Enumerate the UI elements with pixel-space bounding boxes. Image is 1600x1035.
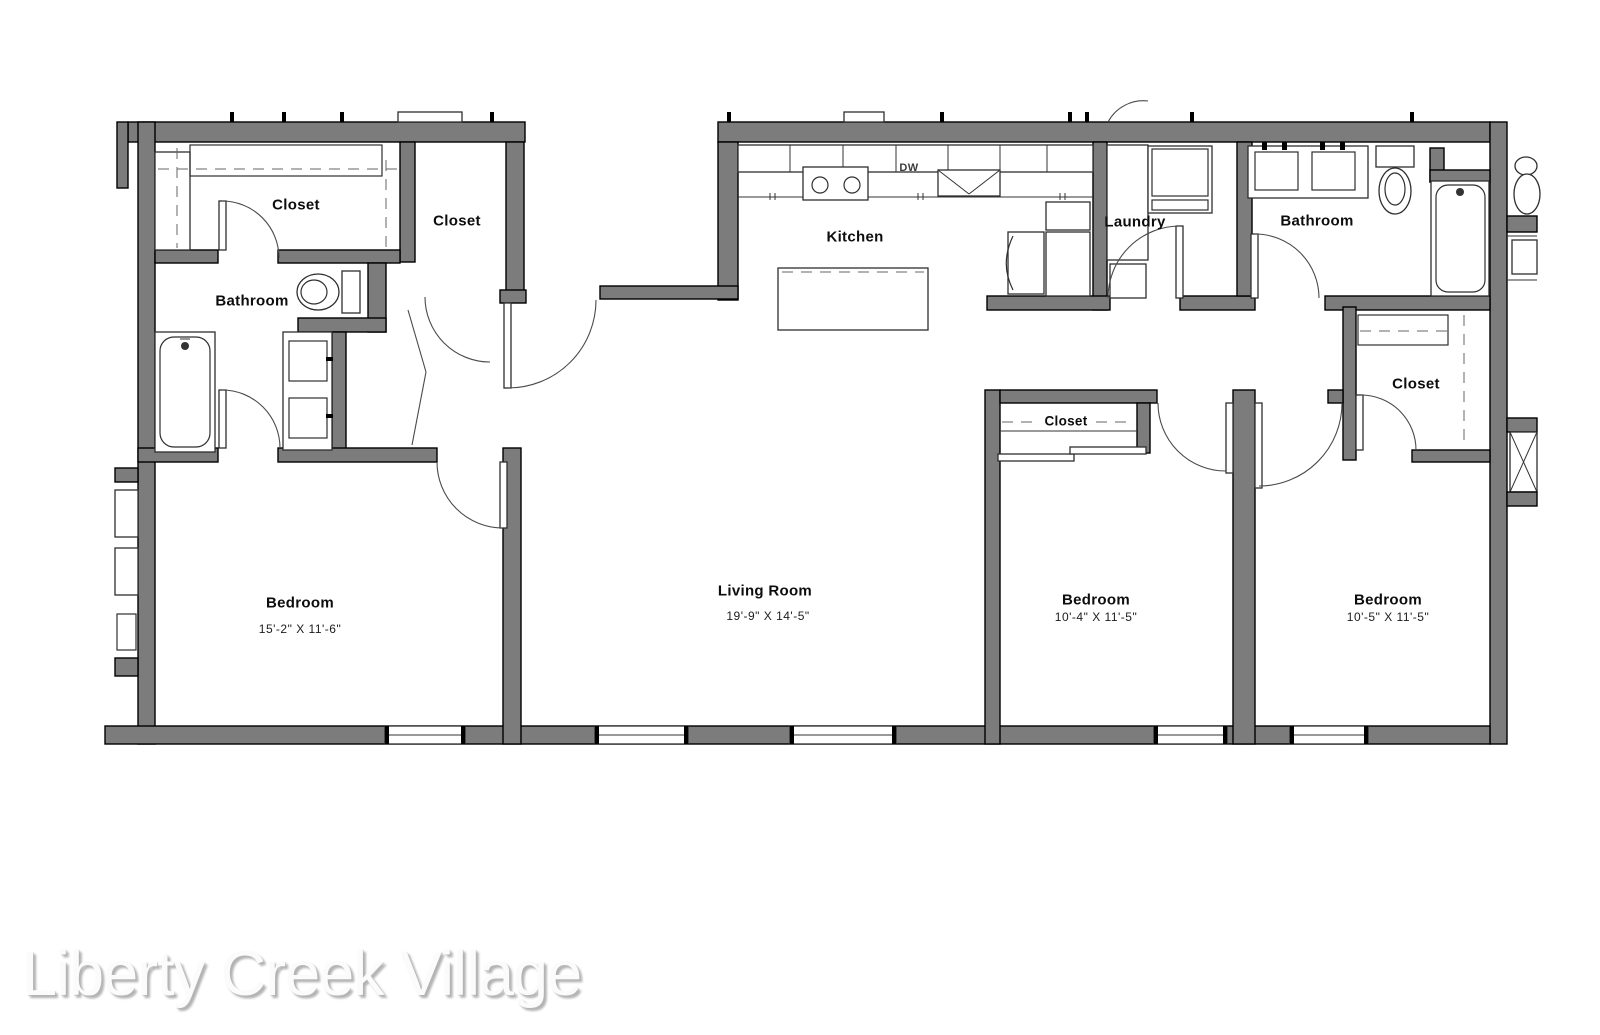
room-label-bedroom1: Bedroom (266, 595, 334, 612)
room-label-bedroom2: Bedroom (1062, 592, 1130, 609)
room-label-bedroom3-closet: Closet (1392, 376, 1440, 393)
room-dims-bedroom2: 10'-4" X 11'-5" (1055, 610, 1137, 624)
toilet (297, 271, 360, 313)
bedroom2-door (1158, 403, 1233, 473)
room-label-entry-closet: Closet (433, 213, 481, 230)
entry-door (504, 300, 596, 388)
room-label-laundry: Laundry (1104, 214, 1165, 231)
washer-dryer (1148, 146, 1212, 213)
adjacent-unit-fragments-left (115, 468, 138, 676)
bathroom2-door (1251, 234, 1319, 298)
window (385, 726, 465, 744)
floorplan-page: Closet Closet Bathroom Kitchen Laundry B… (0, 0, 1600, 1035)
room-label-walkin-closet: Closet (272, 197, 320, 214)
floorplan-drawing (0, 0, 1600, 1035)
window (595, 726, 688, 744)
refrigerator (1006, 232, 1044, 294)
toilet (1376, 146, 1414, 214)
bathroom1-door (219, 390, 280, 448)
watermark-text: Liberty Creek Village (22, 938, 581, 1010)
bedroom3-door (1255, 403, 1342, 488)
bathtub (1431, 181, 1489, 296)
room-label-bedroom3: Bedroom (1354, 592, 1422, 609)
range-hood (938, 170, 1000, 196)
vanity-sinks (1248, 142, 1368, 198)
window (1154, 726, 1227, 744)
room-dims-bedroom1: 15'-2" X 11'-6" (259, 622, 341, 636)
room-label-kitchen: Kitchen (826, 229, 883, 246)
hall-doors-left (408, 297, 490, 445)
window (1290, 726, 1368, 744)
room-label-bedroom2-closet: Closet (1044, 414, 1087, 429)
top-wall-marks (230, 101, 1414, 122)
vanity-sinks (283, 332, 333, 450)
dishwasher-label: DW (899, 162, 918, 174)
room-label-living-room: Living Room (718, 583, 812, 600)
room-label-bathroom1: Bathroom (215, 293, 288, 310)
room-label-bathroom2: Bathroom (1280, 213, 1353, 230)
bedroom1-door (437, 462, 507, 528)
room-dims-living-room: 19'-9" X 14'-5" (726, 609, 809, 623)
adjacent-unit-fragments-right (1507, 157, 1540, 506)
window (790, 726, 896, 744)
bathtub (155, 332, 215, 452)
room-dims-bedroom3: 10'-5" X 11'-5" (1347, 610, 1429, 624)
kitchen-island (778, 268, 928, 330)
pantry-cabinet (1046, 202, 1090, 296)
stove (803, 167, 868, 200)
